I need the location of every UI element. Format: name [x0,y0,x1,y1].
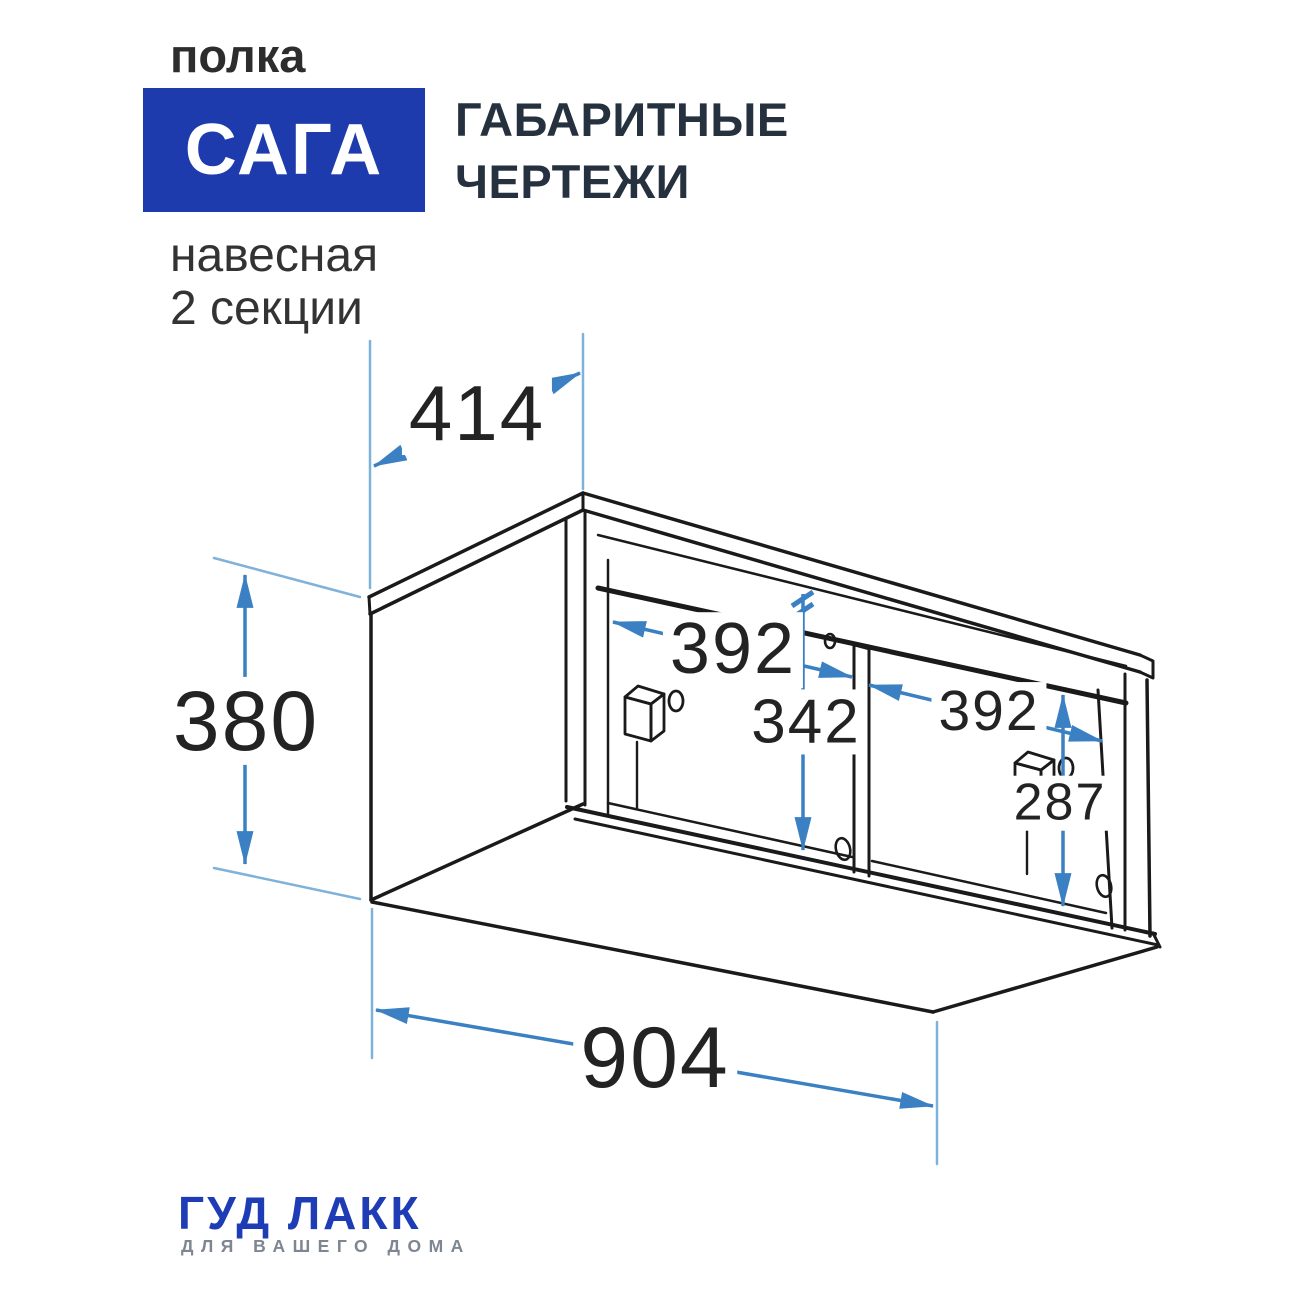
brand-logo: ГУД ЛАКК [178,1186,422,1240]
mounting-bracket-left [625,686,683,808]
dimension-section-width-right: 392 [931,682,1046,742]
brand-tagline: ДЛЯ ВАШЕГО ДОМА [181,1236,471,1257]
dimension-depth: 414 [402,373,552,455]
dimension-height: 380 [166,677,326,765]
page: полка САГА ГАБАРИТНЫЕ ЧЕРТЕЖИ навесная 2… [0,0,1300,1300]
left-side-panel [371,512,585,900]
dimension-width: 904 [573,1013,737,1103]
dimension-inner-height-right: 287 [1007,776,1114,831]
right-side-panel [1125,674,1150,936]
dimension-inner-height-center: 342 [744,689,867,754]
dimension-section-width-left: 392 [663,612,803,688]
